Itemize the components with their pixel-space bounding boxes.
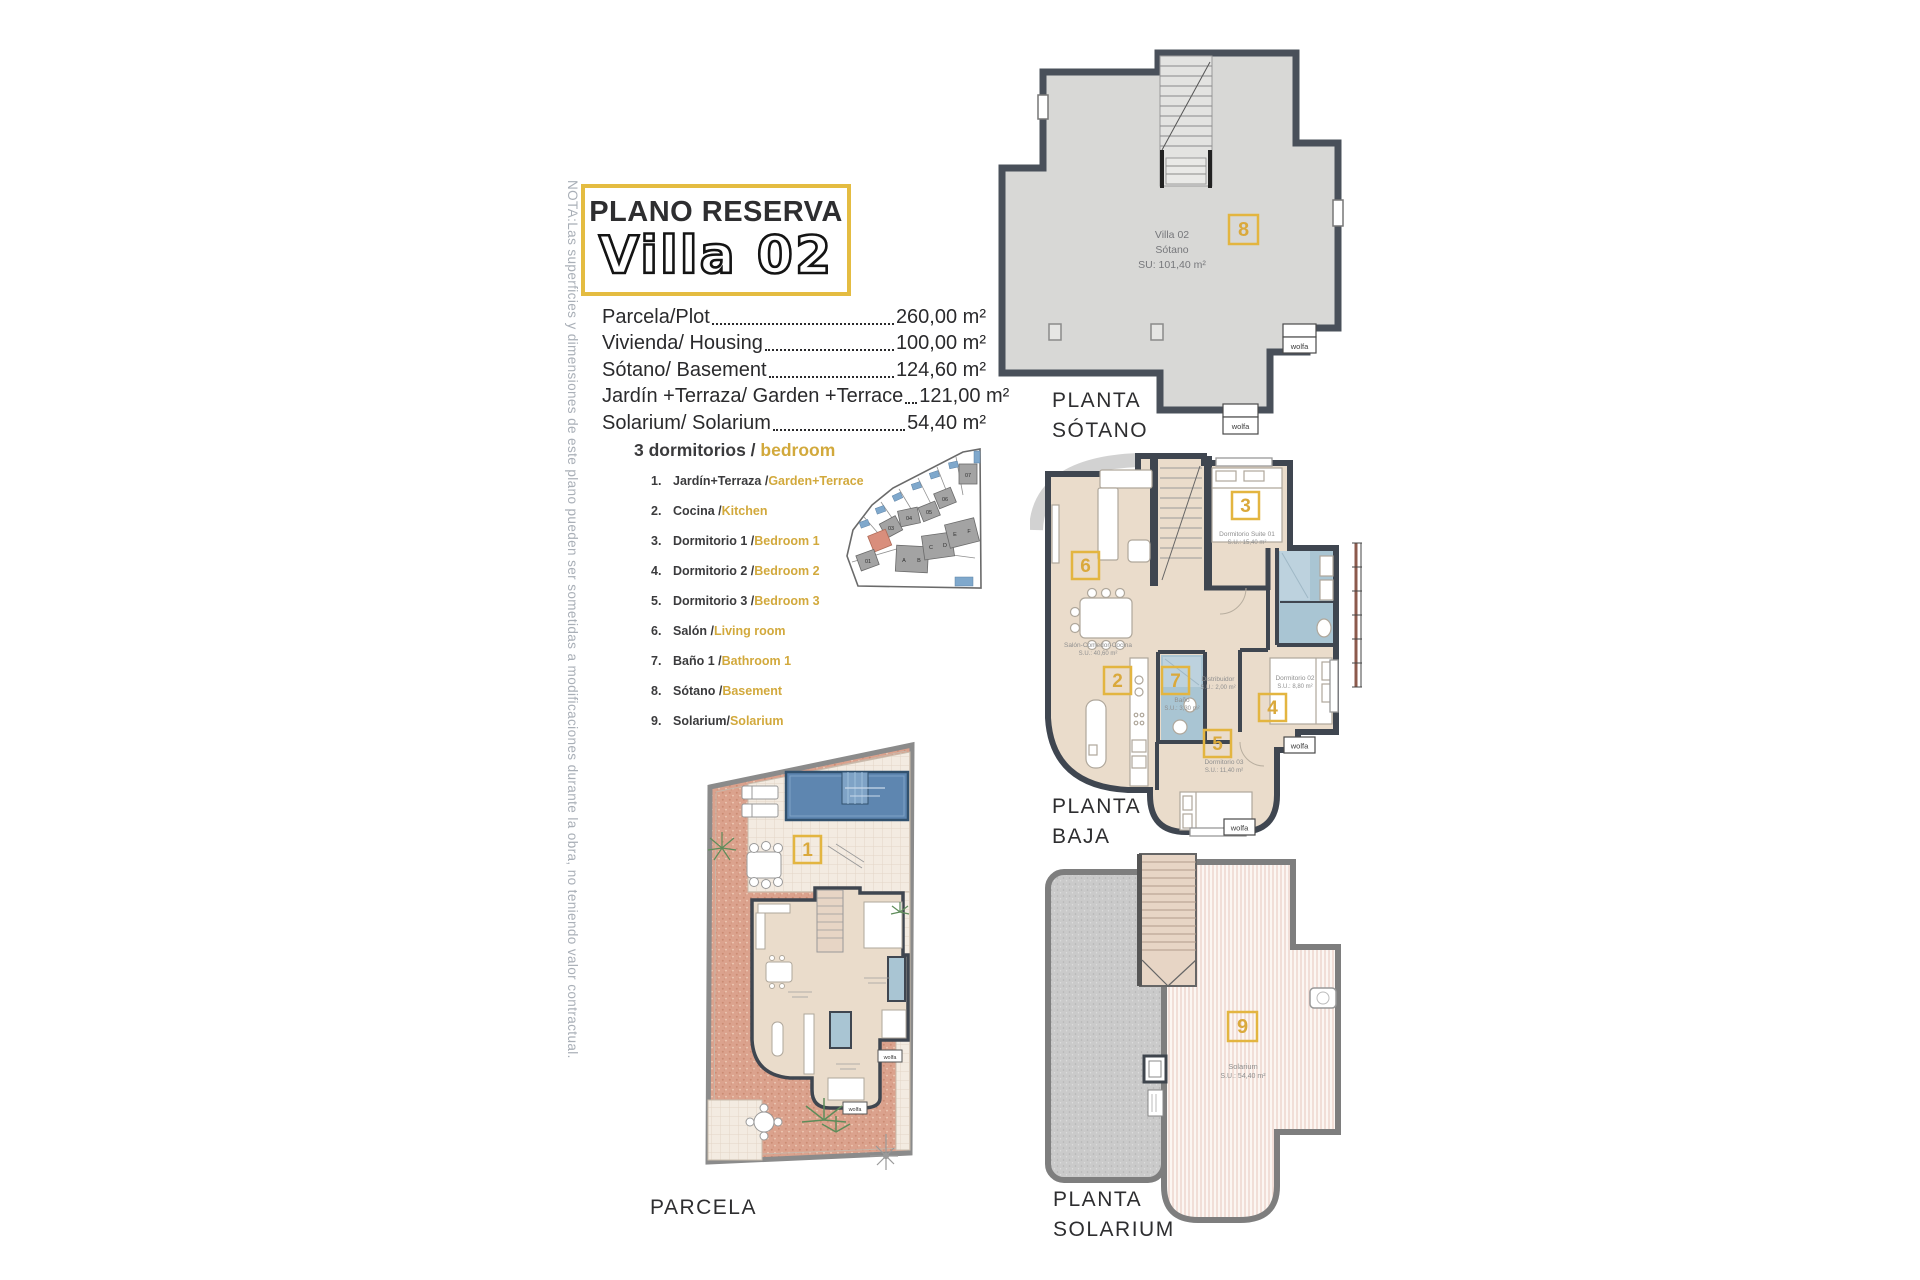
wolfa-logo: wolfa [1223, 404, 1258, 434]
area-label: Jardín +Terraza/ Garden +Terrace [602, 385, 903, 408]
svg-text:SU: 101,40 m²: SU: 101,40 m² [1138, 259, 1206, 271]
room-legend: 3 dormitorios / bedroom 1.Jardín+Terraza… [634, 440, 864, 744]
legend-item: 1.Jardín+Terraza / Garden+Terrace [634, 474, 864, 489]
ac-unit [1310, 988, 1336, 1008]
dot-leader [765, 349, 894, 351]
dot-leader [905, 402, 917, 404]
svg-text:2: 2 [1112, 671, 1123, 692]
svg-text:wolfa: wolfa [1230, 824, 1249, 833]
solarium-floor-plan: 9 Solarium S.U.: 54,40 m² [1030, 850, 1390, 1242]
svg-text:8: 8 [1238, 219, 1249, 241]
legend-item: 4.Dormitorio 2 / Bedroom 2 [634, 564, 864, 579]
basement-stairs [1160, 56, 1212, 188]
wolfa-logo: wolfa [1283, 324, 1316, 353]
wolfa-logo: wolfa [1224, 819, 1255, 835]
wolfa-logo: wolfa [1284, 737, 1315, 753]
svg-text:3: 3 [1240, 496, 1251, 517]
area-row: Parcela/Plot260,00 m² [602, 302, 986, 329]
wolfa-logo: wolfa [843, 1102, 867, 1114]
svg-text:Sótano: Sótano [1155, 244, 1188, 256]
plan-sheet: NOTA:Las superficies y dimensiones de es… [0, 0, 1920, 1280]
svg-text:wolfa: wolfa [848, 1107, 863, 1113]
svg-text:S.U.: 11,40 m²: S.U.: 11,40 m² [1205, 768, 1243, 774]
legend-item: 3.Dormitorio 1 / Bedroom 1 [634, 534, 864, 549]
area-row: Vivienda/ Housing100,00 m² [602, 329, 986, 356]
svg-text:Dormitorio 02: Dormitorio 02 [1275, 675, 1314, 682]
svg-text:S.U.: 3,30 m²: S.U.: 3,30 m² [1164, 706, 1199, 712]
dot-leader [773, 429, 905, 431]
svg-text:Baño: Baño [1174, 697, 1190, 704]
title-box: PLANO RESERVA Villa 02 [581, 184, 851, 296]
svg-text:S.U.: 54,40 m²: S.U.: 54,40 m² [1220, 1073, 1266, 1080]
svg-text:S.U.: 15,40 m²: S.U.: 15,40 m² [1228, 540, 1267, 546]
svg-text:Distribuidor: Distribuidor [1202, 676, 1236, 683]
svg-text:Villa 02: Villa 02 [1155, 229, 1189, 241]
svg-text:9: 9 [1237, 1016, 1248, 1038]
svg-text:C: C [929, 545, 933, 551]
legend-heading: 3 dormitorios / bedroom [634, 440, 864, 461]
svg-text:Dormitorio Suite 01: Dormitorio Suite 01 [1219, 531, 1275, 538]
svg-text:6: 6 [1080, 556, 1091, 577]
solarium-stairs [1137, 854, 1196, 986]
area-row: Solarium/ Solarium54,40 m² [602, 408, 986, 435]
parcel-plan: 1 [640, 730, 960, 1222]
svg-text:05: 05 [926, 510, 932, 516]
svg-text:wolfa: wolfa [883, 1055, 898, 1061]
svg-text:wolfa: wolfa [1290, 342, 1309, 351]
area-label: Solarium/ Solarium [602, 412, 771, 435]
site-location-map: 01 03 04 05 06 07 A B C D E F [840, 443, 1050, 603]
area-value: 124,60 m² [896, 359, 986, 382]
area-label: Parcela/Plot [602, 306, 710, 329]
legend-item: 9.Solarium/Solarium [634, 714, 864, 729]
dot-leader [712, 323, 894, 325]
svg-text:1: 1 [802, 840, 813, 861]
svg-text:S.U.: 2,00 m²: S.U.: 2,00 m² [1200, 685, 1235, 691]
basement-plan-label: PLANTA SÓTANO [1052, 386, 1148, 447]
svg-text:B: B [917, 558, 921, 564]
outdoor-dining-table [747, 842, 783, 889]
area-row: Jardín +Terraza/ Garden +Terrace121,00 m… [602, 382, 986, 409]
area-label: Sótano/ Basement [602, 359, 767, 382]
svg-text:5: 5 [1212, 734, 1223, 755]
svg-text:D: D [943, 543, 947, 549]
surface-areas-list: Parcela/Plot260,00 m² Vivienda/ Housing1… [602, 302, 986, 435]
legend-heading-en: bedroom [760, 440, 835, 460]
area-row: Sótano/ Basement124,60 m² [602, 355, 986, 382]
wolfa-logo: wolfa [878, 1050, 902, 1062]
svg-text:01: 01 [865, 559, 871, 565]
svg-text:S.U.: 40,60 m²: S.U.: 40,60 m² [1079, 651, 1118, 657]
legend-heading-es: 3 dormitorios / [634, 440, 760, 460]
solarium-plan-label: PLANTA SOLARIUM [1053, 1185, 1175, 1246]
area-label: Vivienda/ Housing [602, 332, 763, 355]
svg-text:wolfa: wolfa [1231, 422, 1250, 431]
plan-kicker: PLANO RESERVA [589, 196, 843, 229]
basement-floor-plan: Villa 02 Sótano SU: 101,40 m² 8 wolfa wo… [985, 40, 1365, 452]
villa-title: Villa 02 [599, 229, 833, 284]
legend-item: 2.Cocina / Kitchen [634, 504, 864, 519]
svg-text:wolfa: wolfa [1290, 742, 1309, 751]
svg-text:06: 06 [942, 497, 948, 503]
area-value: 260,00 m² [896, 306, 986, 329]
svg-text:04: 04 [906, 516, 912, 522]
dot-leader [769, 376, 894, 378]
svg-text:Salón-Comedor-Cocina: Salón-Comedor-Cocina [1064, 642, 1132, 649]
area-value: 54,40 m² [907, 412, 986, 435]
svg-text:7: 7 [1170, 671, 1181, 692]
svg-text:07: 07 [965, 473, 971, 479]
legend-item: 6.Salón / Living room [634, 624, 864, 639]
svg-text:4: 4 [1267, 698, 1278, 719]
svg-text:Dormitorio 03: Dormitorio 03 [1204, 759, 1243, 766]
disclaimer-note: NOTA:Las superficies y dimensiones de es… [552, 180, 580, 1070]
legend-item: 8.Sótano /Basement [634, 684, 864, 699]
scale-ruler [1352, 543, 1362, 687]
area-value: 100,00 m² [896, 332, 986, 355]
svg-text:S.U.: 8,80 m²: S.U.: 8,80 m² [1277, 684, 1312, 690]
pool [786, 772, 908, 820]
parcel-plan-label: PARCELA [650, 1193, 757, 1223]
legend-item: 5.Dormitorio 3 / Bedroom 3 [634, 594, 864, 609]
ground-floor-plan-label: PLANTA BAJA [1052, 792, 1141, 853]
legend-item: 7.Baño 1 / Bathroom 1 [634, 654, 864, 669]
svg-text:03: 03 [888, 526, 894, 532]
svg-text:A: A [902, 558, 906, 564]
svg-text:Solarium: Solarium [1228, 1062, 1258, 1071]
svg-text:E: E [953, 532, 957, 538]
